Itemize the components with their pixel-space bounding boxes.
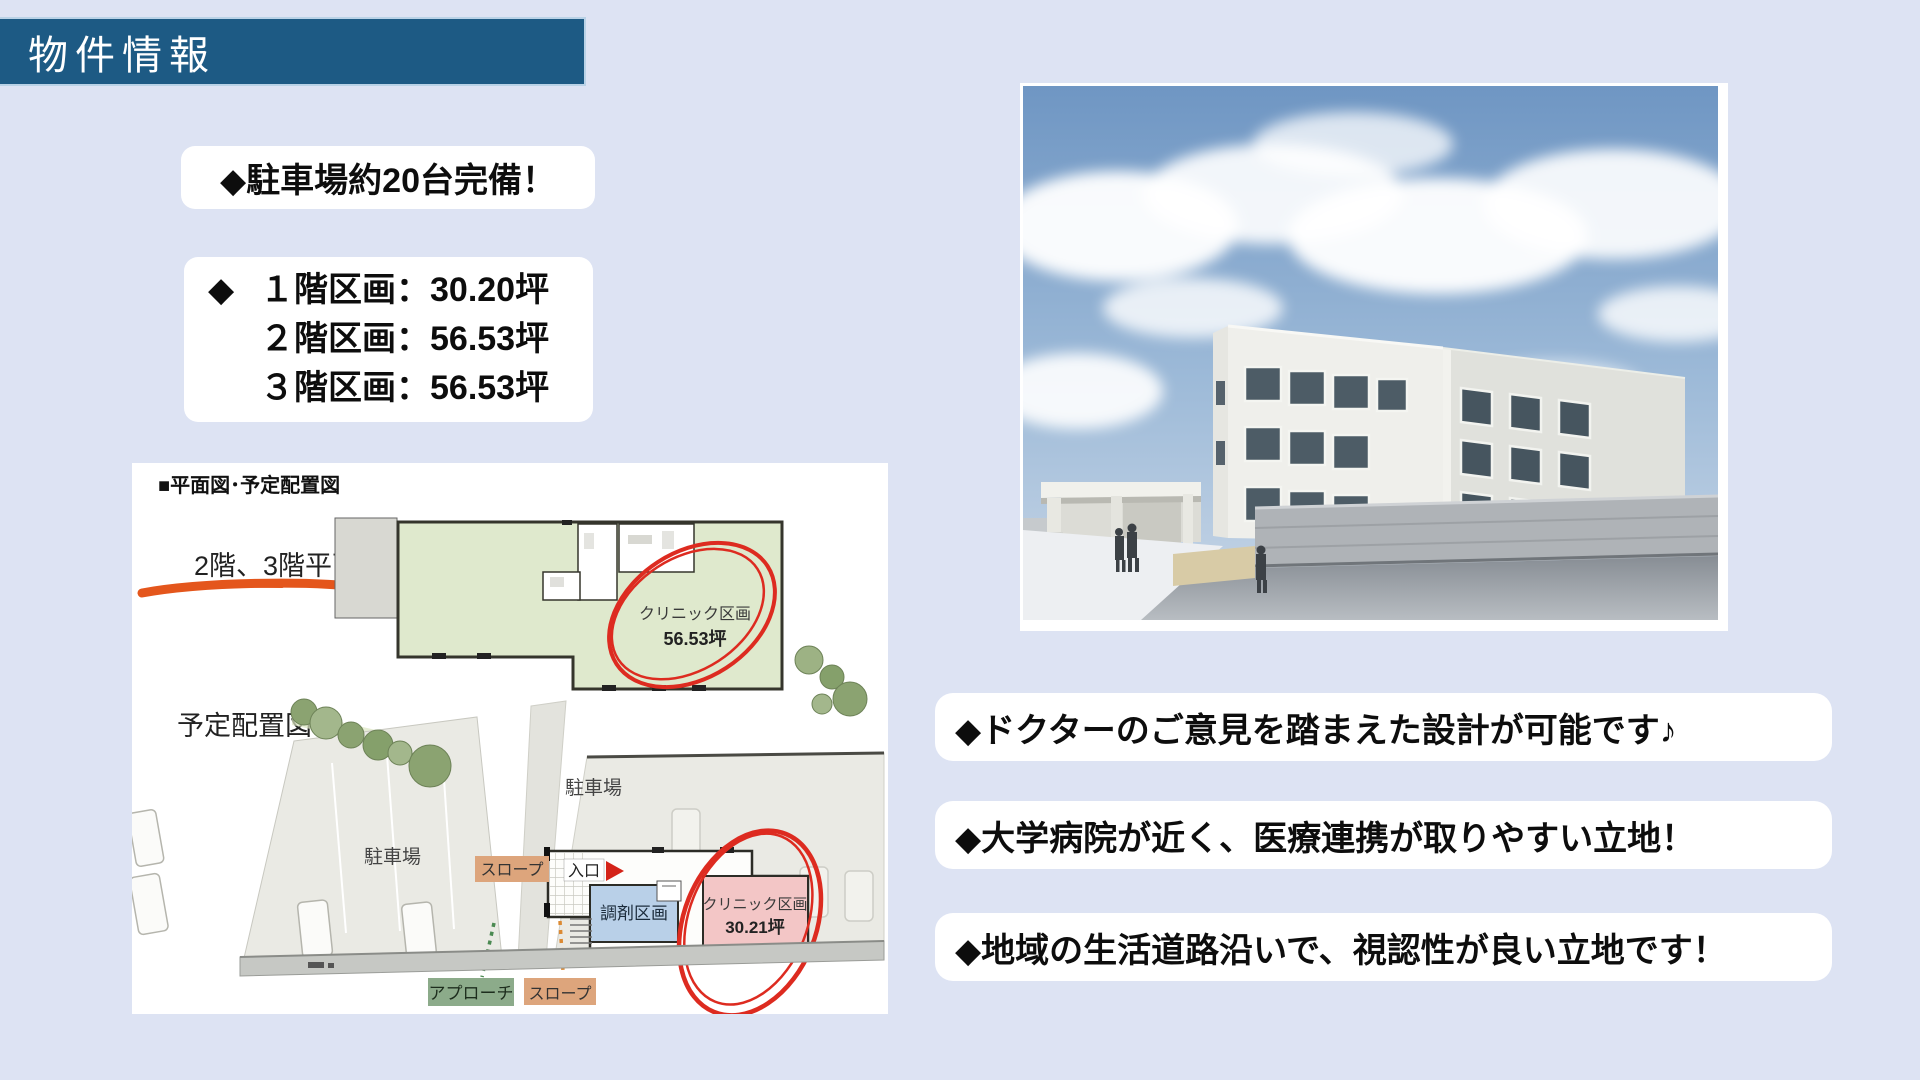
building-photo-frame — [1020, 83, 1728, 631]
road-mark — [308, 962, 324, 968]
building-rendering — [1023, 86, 1718, 620]
benefit-banner-3: ◆地域の生活道路沿いで、視認性が良い立地です！ — [935, 913, 1832, 981]
benefit-text-2: ◆大学病院が近く、医療連携が取りやすい立地！ — [955, 811, 1695, 860]
window — [1559, 400, 1590, 438]
diamond-bullet-icon: ◆ — [208, 266, 260, 315]
tree — [795, 646, 823, 674]
highlight-units-card: ◆ １階区画：30.20坪 ◆ ２階区画：56.53坪 ◆ ３階区画：56.53… — [184, 257, 593, 422]
approach-label: アプローチ — [428, 978, 514, 1006]
window — [1510, 446, 1541, 484]
slope-bottom-label: スロープ — [524, 978, 596, 1005]
fixture-box — [657, 881, 681, 901]
lower-clinic-name: クリニック区画 — [702, 896, 807, 913]
benefit-text-1: ◆ドクターのご意見を踏まえた設計が可能です♪ — [955, 703, 1677, 752]
tree — [310, 707, 342, 739]
tree — [812, 694, 832, 714]
car — [845, 871, 873, 921]
entrance-text: 入口 — [568, 863, 600, 880]
floorplan-panel: ■平面図･予定配置図 2階、3階平面図 クリニック区画 56.53坪 — [132, 463, 888, 1014]
approach-text: アプローチ — [429, 984, 514, 1003]
unit-row-1: ◆ １階区画：30.20坪 — [208, 266, 593, 315]
site-plan: 予定配置図 駐車場 駐車場 — [132, 699, 884, 1014]
window — [1461, 440, 1492, 478]
highlight-parking-text: ◆駐車場約20台完備！ — [220, 153, 556, 202]
upper-clinic-name: クリニック区画 — [639, 605, 751, 623]
window — [1333, 375, 1369, 409]
clinic-lower-zone — [703, 876, 808, 950]
orange-underline-swoosh — [142, 583, 366, 593]
tree — [388, 741, 412, 765]
slope-top-text: スロープ — [480, 861, 543, 879]
tree — [409, 745, 451, 787]
window — [1289, 431, 1325, 465]
stairwell-block — [335, 518, 397, 618]
building-side-strip — [1213, 326, 1228, 538]
unit-line-1: １階区画：30.20坪 — [260, 266, 549, 315]
trees-right — [795, 646, 867, 716]
unit-line-2: ２階区画：56.53坪 — [260, 315, 549, 364]
dispensing-label: 調剤区画 — [600, 904, 668, 923]
window — [1333, 435, 1369, 469]
slope-top-label: スロープ — [475, 856, 549, 882]
road-mark — [328, 963, 334, 968]
floorplan-title: ■平面図･予定配置図 — [158, 473, 340, 497]
parking-label-right: 駐車場 — [565, 777, 622, 799]
window — [1245, 367, 1281, 401]
window — [1510, 394, 1541, 432]
unit-row-3: ◆ ３階区画：56.53坪 — [208, 364, 593, 413]
base-wall — [1255, 496, 1718, 568]
upper-floorplan: クリニック区画 56.53坪 — [335, 513, 867, 717]
cloud — [1253, 112, 1453, 176]
window — [1559, 452, 1590, 490]
bold-tick — [544, 903, 550, 917]
upper-clinic-area: 56.53坪 — [663, 629, 726, 649]
slope-bottom-text: スロープ — [528, 985, 591, 1003]
tree — [338, 722, 364, 748]
car — [132, 873, 169, 935]
lower-clinic-area: 30.21坪 — [725, 918, 785, 937]
floorplan-image: ■平面図･予定配置図 2階、3階平面図 クリニック区画 56.53坪 — [132, 463, 888, 1014]
window — [1461, 388, 1492, 426]
unit-line-3: ３階区画：56.53坪 — [260, 364, 549, 413]
benefit-banner-2: ◆大学病院が近く、医療連携が取りやすい立地！ — [935, 801, 1832, 869]
parking-label-left: 駐車場 — [364, 846, 421, 868]
tree — [833, 682, 867, 716]
window — [1245, 427, 1281, 461]
benefit-banner-1: ◆ドクターのご意見を踏まえた設計が可能です♪ — [935, 693, 1832, 761]
highlight-parking-card: ◆駐車場約20台完備！ — [181, 146, 595, 209]
window — [1377, 379, 1407, 411]
page-title-banner: 物件情報 — [0, 17, 586, 86]
window — [1216, 441, 1225, 465]
unit-row-2: ◆ ２階区画：56.53坪 — [208, 315, 593, 364]
benefit-text-3: ◆地域の生活道路沿いで、視認性が良い立地です！ — [955, 923, 1727, 972]
car — [132, 809, 164, 867]
car — [297, 900, 333, 959]
window — [1289, 371, 1325, 405]
page-title: 物件情報 — [28, 23, 216, 81]
window — [1216, 381, 1225, 405]
car — [401, 902, 436, 959]
